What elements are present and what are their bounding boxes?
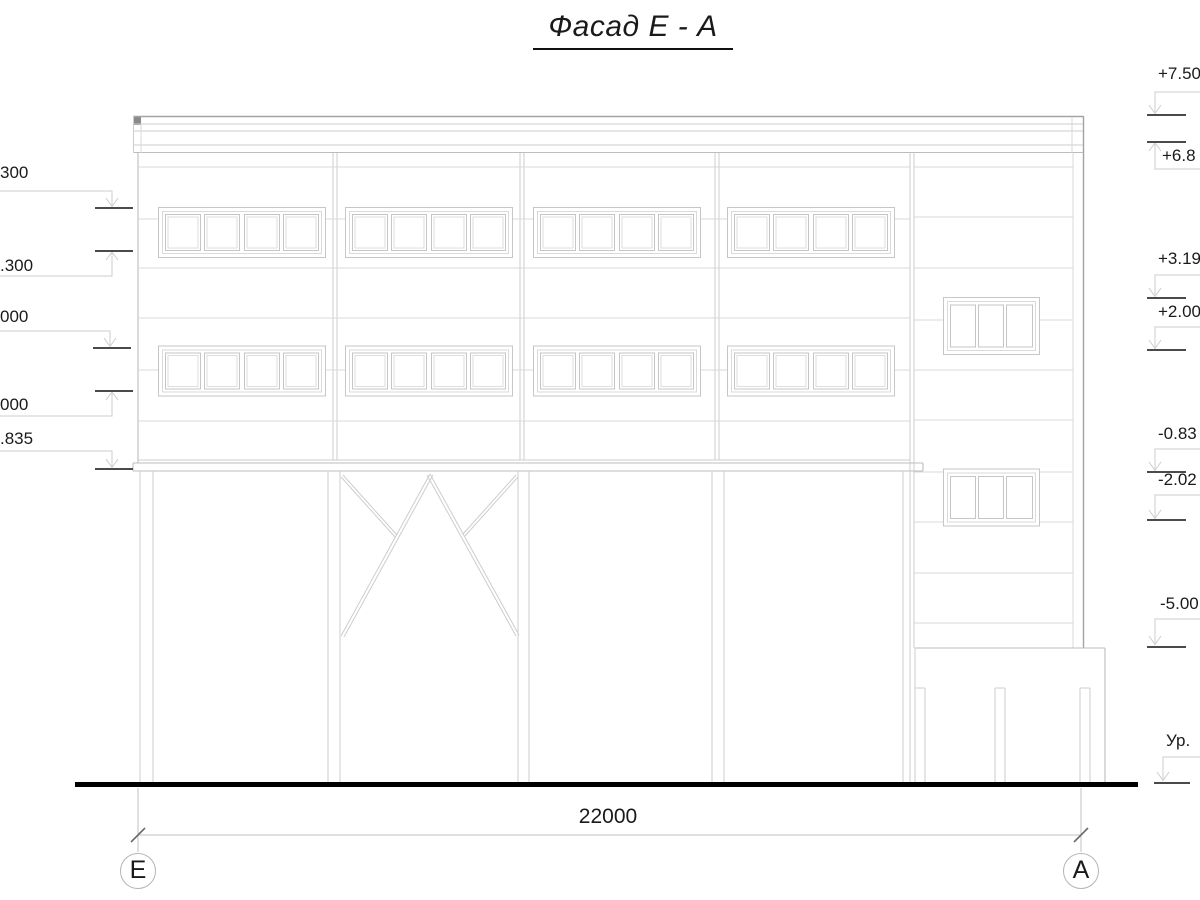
- elevation-label-right-5: -0.83: [1158, 424, 1197, 444]
- small-window-upper: [944, 298, 1040, 355]
- elevation-label-left-5: .835: [0, 429, 33, 449]
- drawing-title: Фасад Е - А: [533, 10, 733, 50]
- elevation-label-left-4: 000: [0, 395, 28, 415]
- diagonal-bracing: [341, 474, 519, 637]
- elevation-label-right-2: +6.8: [1162, 146, 1196, 166]
- elevation-label-left-2: .300: [0, 256, 33, 276]
- elevation-label-left-1: 300: [0, 163, 28, 183]
- foundation-block: [915, 648, 1105, 783]
- elevation-label-right-6: -2.02: [1158, 470, 1197, 490]
- elevation-leaders-left: [0, 191, 133, 469]
- axis-marker-a: А: [1061, 856, 1101, 885]
- elevation-label-right-3: +3.19: [1158, 249, 1200, 269]
- drawing-sheet: Фасад Е - А 300 .300 000 000 .835 +7.50 …: [0, 0, 1200, 900]
- window-band-upper: [159, 208, 895, 258]
- roof-cornice: [133, 116, 1084, 153]
- elevation-label-right-8: Ур.: [1166, 731, 1190, 751]
- axis-bubbles: [121, 854, 1099, 889]
- elevation-label-right-7: -5.00: [1160, 594, 1199, 614]
- columns: [140, 471, 910, 783]
- elevation-label-right-4: +2.00: [1158, 302, 1200, 322]
- overall-dimension: 22000: [558, 805, 658, 829]
- window-band-lower: [159, 346, 895, 396]
- elevation-label-left-3: 000: [0, 307, 28, 327]
- facade-drawing: [0, 0, 1200, 900]
- axis-marker-e: Е: [118, 856, 158, 885]
- small-window-lower: [944, 469, 1040, 526]
- elevation-label-right-1: +7.50: [1158, 64, 1200, 84]
